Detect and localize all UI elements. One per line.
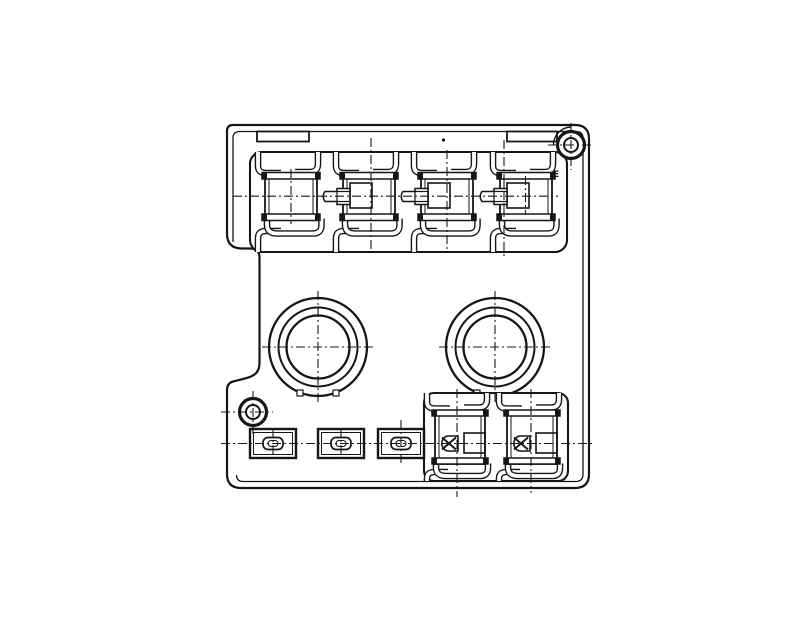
corner-label: E bbox=[553, 170, 559, 180]
technical-drawing-page: E bbox=[0, 0, 800, 630]
reference-dot bbox=[442, 138, 445, 141]
mounting-tab-left bbox=[257, 132, 309, 142]
connector-pocket-top bbox=[250, 152, 567, 252]
notch-right bbox=[333, 390, 339, 396]
connector-pocket-bottom bbox=[424, 393, 568, 481]
mounting-tab-right bbox=[507, 132, 557, 142]
notch-left bbox=[297, 390, 303, 396]
technical-drawing-canvas: E bbox=[0, 0, 800, 630]
